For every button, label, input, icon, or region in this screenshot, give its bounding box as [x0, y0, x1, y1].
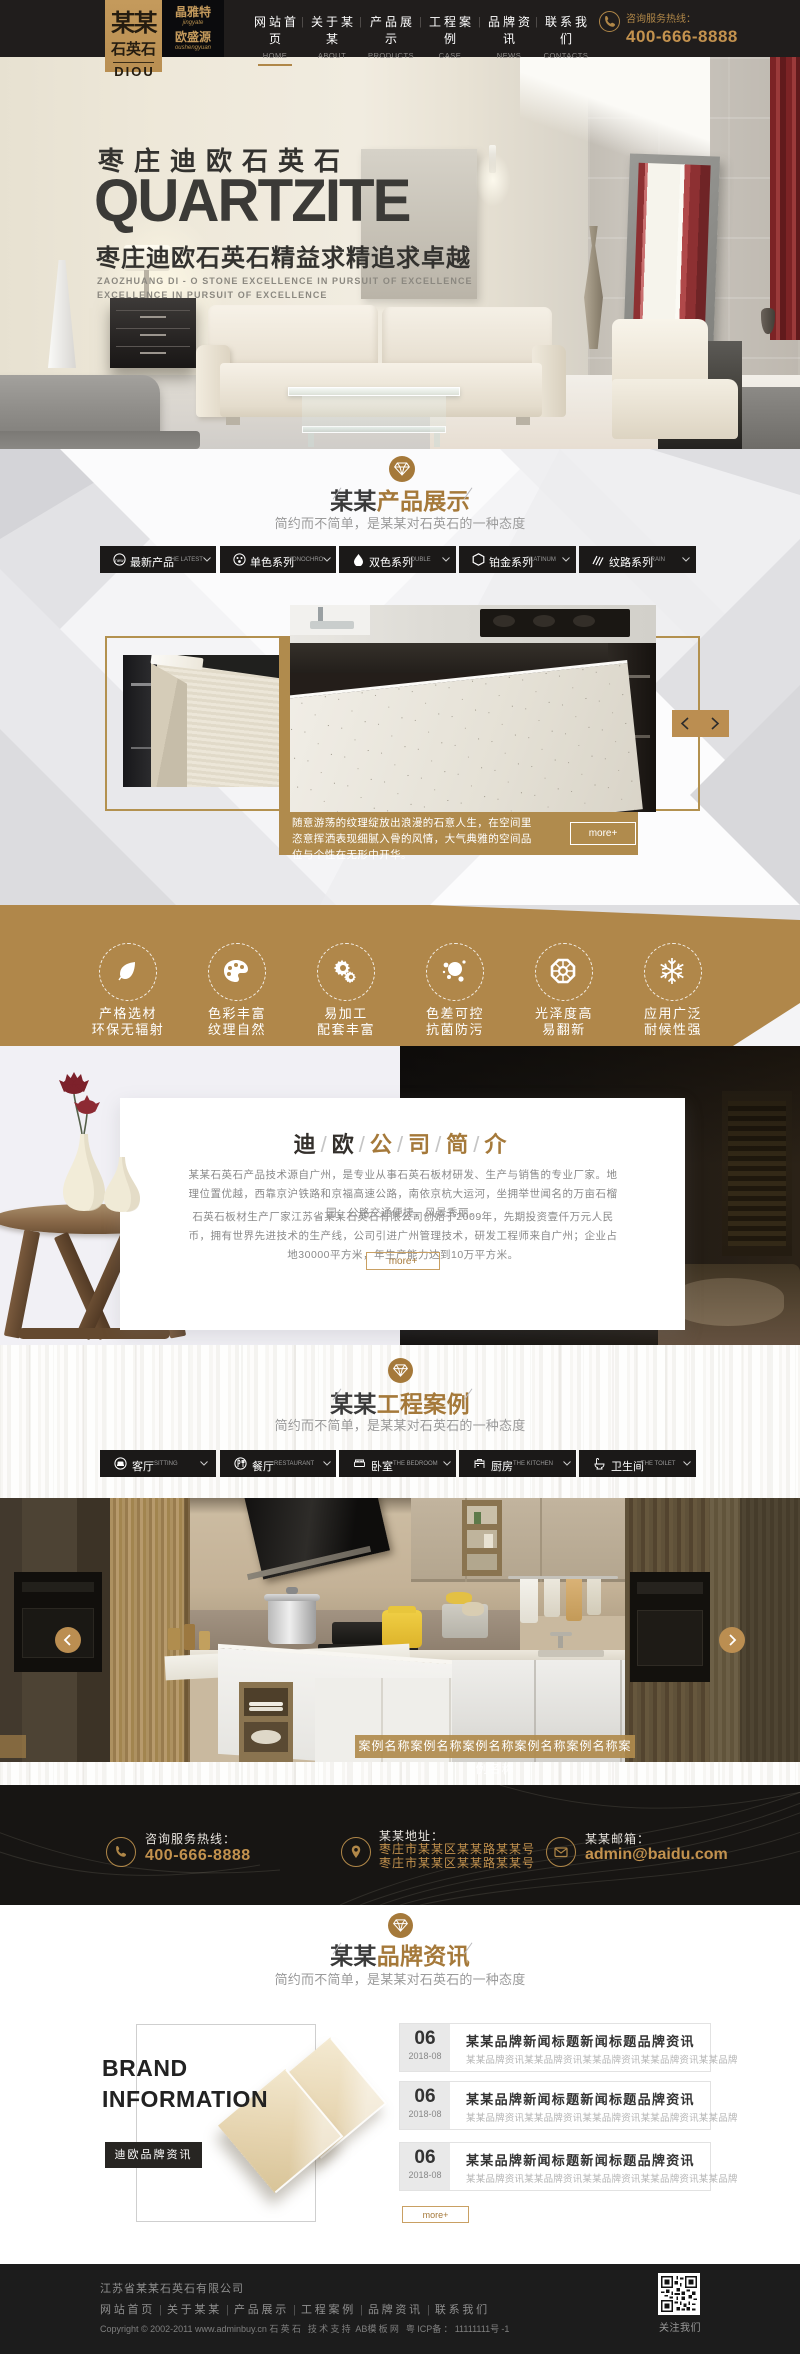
svg-text:new: new: [115, 558, 124, 563]
